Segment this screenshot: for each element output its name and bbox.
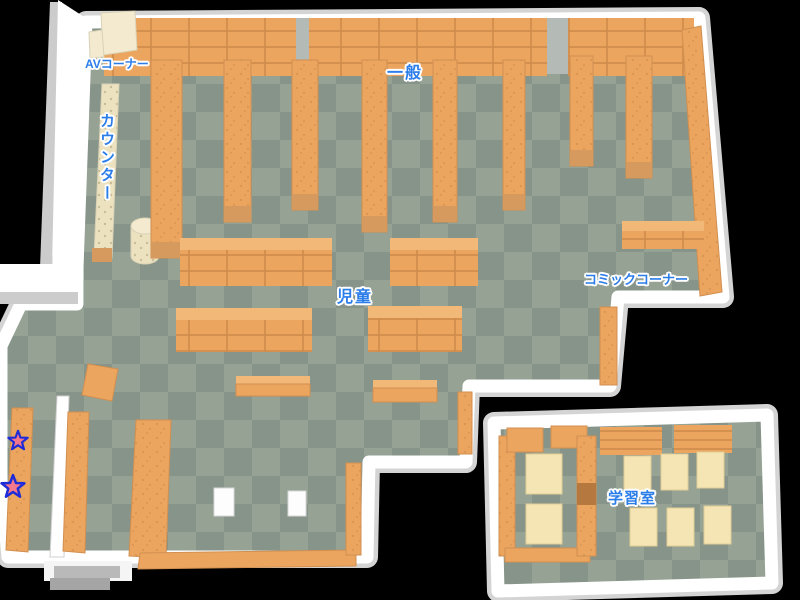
shelf-column xyxy=(63,412,89,553)
shelf-column xyxy=(433,60,457,222)
children-shelf-top xyxy=(368,306,462,318)
side-wall-shelf xyxy=(346,463,361,555)
children-shelf-front xyxy=(390,250,478,286)
shelf-column-foot xyxy=(362,216,387,232)
av-desk xyxy=(89,30,104,58)
study-slat-shelf xyxy=(600,427,662,455)
floor-mat xyxy=(82,364,118,401)
left-wall-block xyxy=(0,264,78,294)
window-pillar xyxy=(547,18,568,74)
children-low-shelf xyxy=(373,388,437,402)
shelf-column-foot xyxy=(570,150,593,166)
children-low-shelf xyxy=(373,380,437,388)
shelf-column xyxy=(570,56,593,166)
shelf-column-foot xyxy=(151,242,182,258)
study-table xyxy=(704,506,731,544)
shelf-column xyxy=(129,420,171,558)
children-low-shelf xyxy=(236,384,310,396)
av-desk xyxy=(101,11,137,55)
study-table xyxy=(697,452,724,488)
children-shelf-top xyxy=(176,308,312,320)
shelf-column-foot xyxy=(503,194,525,210)
children-shelf-front xyxy=(368,318,462,352)
kiosk-table xyxy=(288,491,306,516)
left-wall-block-front xyxy=(0,292,78,304)
kiosk-table xyxy=(214,488,234,516)
study-table xyxy=(526,454,562,494)
shelf-column xyxy=(224,60,251,222)
children-shelf-top xyxy=(390,238,478,250)
library-floor-map: AVコーナー カウンター 一般 児童 コミックコーナー 学習室 xyxy=(0,0,800,600)
entrance-door[interactable] xyxy=(54,566,120,578)
study-table xyxy=(661,454,688,490)
label-av-corner: AVコーナー xyxy=(85,55,149,72)
label-comic-corner: コミックコーナー xyxy=(584,269,688,288)
children-low-shelf xyxy=(236,376,310,384)
shelf-column-foot xyxy=(433,206,457,222)
comic-wall-shelf xyxy=(600,307,617,385)
counter-foot xyxy=(92,248,112,262)
label-children: 児童 xyxy=(337,283,373,307)
study-shelf xyxy=(499,436,515,556)
study-table xyxy=(526,504,562,544)
shelf-column xyxy=(292,60,318,210)
shelf-column-foot xyxy=(626,162,652,178)
shelf-column xyxy=(503,60,525,210)
bottom-wall-shelf xyxy=(138,550,356,569)
children-shelf-front xyxy=(176,320,312,352)
entrance-step xyxy=(50,578,110,590)
comic-wall-shelf xyxy=(458,392,472,454)
shelf-column xyxy=(362,60,387,232)
label-counter: カウンター xyxy=(96,113,117,203)
children-shelf-front xyxy=(180,250,332,286)
shelf-column-foot xyxy=(292,194,318,210)
study-table xyxy=(630,508,657,546)
study-divider-door xyxy=(577,483,596,505)
children-shelf-top xyxy=(180,238,332,250)
shelf-column-foot xyxy=(224,206,251,222)
study-slat-shelf xyxy=(674,425,732,453)
comic-shelf-top xyxy=(622,221,704,231)
label-general: 一般 xyxy=(387,59,423,83)
comic-shelf-front xyxy=(622,231,704,249)
label-study-room: 学習室 xyxy=(608,487,656,508)
shelf-column xyxy=(151,60,182,258)
study-shelf xyxy=(507,428,543,452)
floor-map-canvas xyxy=(0,0,800,600)
study-table xyxy=(667,508,694,546)
shelf-column xyxy=(626,56,652,178)
